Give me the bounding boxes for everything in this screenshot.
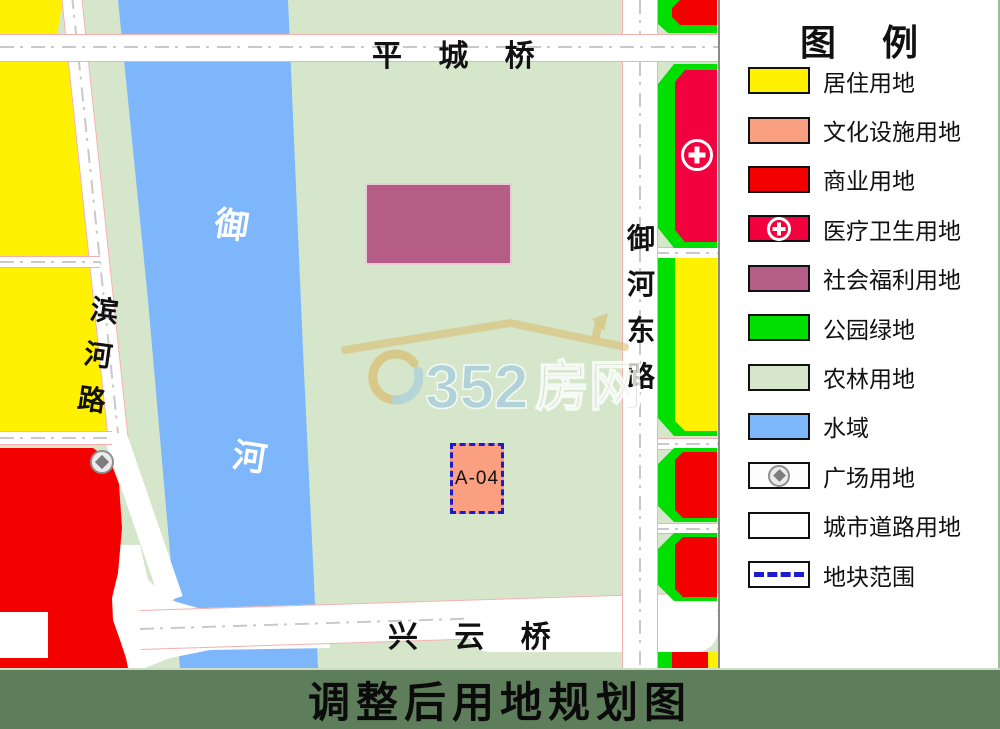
title-bar: 调整后用地规划图 — [0, 668, 1000, 729]
legend-item-plaza: 广场用地 — [720, 451, 998, 500]
commercial-block-right-1 — [658, 448, 717, 522]
legend-swatch-plot-boundary — [748, 561, 810, 588]
page-title: 调整后用地规划图 — [308, 669, 692, 729]
commercial-block-right-2 — [658, 533, 717, 601]
legend-rows: 居住用地 文化设施用地 商业用地 医疗卫生用地 社会福利用地 — [720, 56, 998, 599]
plot-a04-label: A-04 — [455, 468, 499, 490]
block-right-top — [658, 0, 717, 33]
xingyun-bridge-label: 兴 云 桥 — [388, 612, 565, 656]
side-road-right-3 — [655, 523, 718, 534]
legend-item-plot-boundary: 地块范围 — [720, 550, 998, 599]
legend-item-urban-road: 城市道路用地 — [720, 501, 998, 550]
legend-item-medical: 医疗卫生用地 — [720, 204, 998, 253]
planning-map-image: A-04 平 城 桥 兴 云 桥 御 河 滨河路 御河东路 352 房 — [0, 0, 1000, 729]
pingcheng-bridge-road — [0, 34, 718, 62]
legend-swatch-cultural — [748, 117, 810, 144]
social-welfare-block — [365, 183, 512, 265]
side-road-right-1 — [655, 247, 718, 259]
pingcheng-bridge-label: 平 城 桥 — [372, 31, 549, 75]
legend-item-agriculture: 农林用地 — [720, 352, 998, 401]
plot-a04: A-04 — [450, 443, 504, 514]
block-right-bottom-strip — [658, 652, 717, 668]
plaza-diamond-icon — [95, 455, 109, 469]
watermark-logo: 352 房网 — [330, 305, 660, 425]
legend-swatch-water — [748, 413, 810, 440]
legend-swatch-residential — [748, 67, 810, 94]
legend-swatch-commercial — [748, 166, 810, 193]
plaza-icon — [768, 465, 790, 487]
legend-swatch-agriculture — [748, 364, 810, 391]
legend-swatch-park — [748, 314, 810, 341]
medical-cross-icon — [767, 217, 791, 241]
residential-block-right — [658, 258, 717, 436]
side-road-left-1 — [0, 256, 100, 268]
legend-item-water: 水域 — [720, 402, 998, 451]
legend-swatch-medical — [748, 215, 810, 242]
legend-item-commercial: 商业用地 — [720, 155, 998, 204]
side-road-left-2 — [0, 431, 112, 445]
legend-item-residential: 居住用地 — [720, 56, 998, 105]
plot-boundary-dash-icon — [754, 572, 804, 577]
yuhe-east-road-label: 御河东路 — [627, 221, 655, 396]
legend-item-welfare: 社会福利用地 — [720, 254, 998, 303]
legend-swatch-plaza — [748, 462, 810, 489]
legend-swatch-welfare — [748, 265, 810, 292]
legend-item-park: 公园绿地 — [720, 303, 998, 352]
white-notch — [0, 612, 48, 658]
medical-cross-icon — [681, 139, 713, 171]
watermark-number: 352 — [425, 353, 528, 422]
plaza-icon — [90, 450, 114, 474]
commercial-block-bottom-left — [0, 448, 130, 668]
legend-panel: 图 例 居住用地 文化设施用地 商业用地 医疗卫生用地 — [720, 0, 1000, 668]
map-canvas: A-04 平 城 桥 兴 云 桥 御 河 滨河路 御河东路 352 房 — [0, 0, 718, 668]
legend-swatch-urban-road — [748, 512, 810, 539]
legend-item-cultural: 文化设施用地 — [720, 105, 998, 154]
